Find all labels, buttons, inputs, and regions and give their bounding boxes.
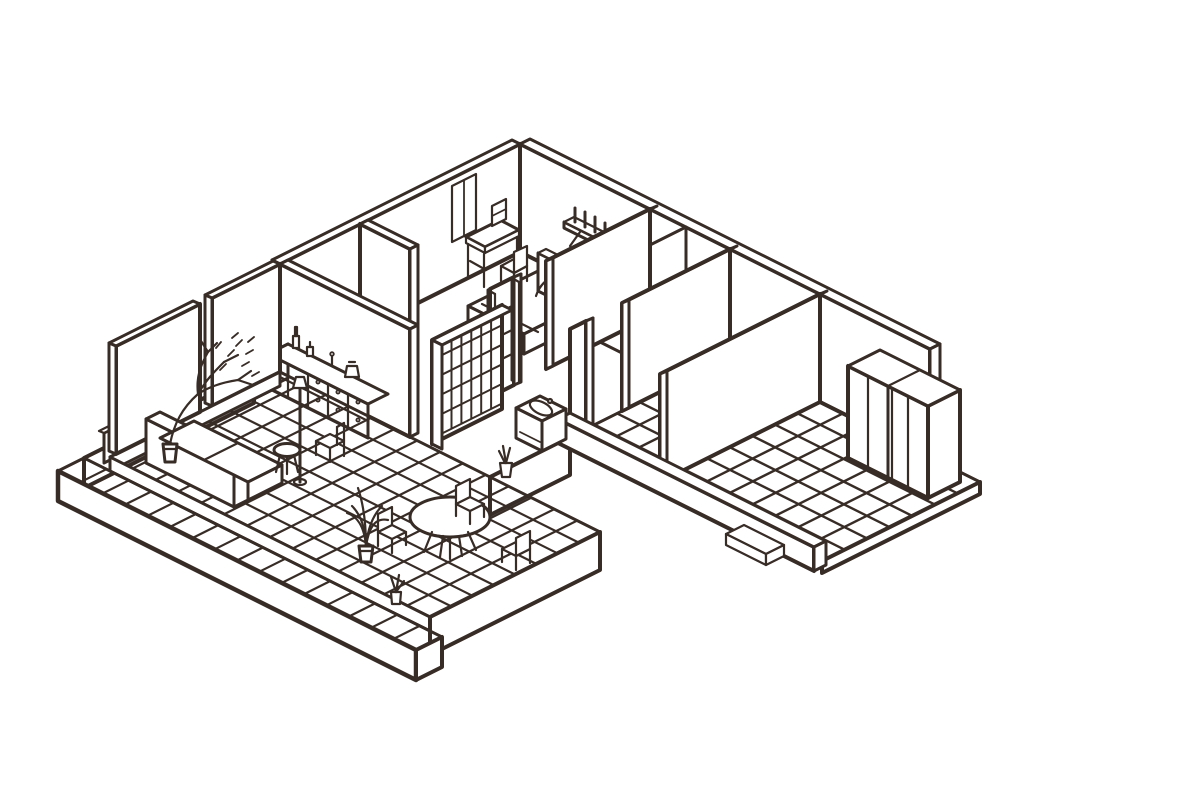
page xyxy=(0,0,1200,800)
vanity xyxy=(516,396,566,451)
bottle xyxy=(293,327,299,348)
isometric-floorplan-illustration xyxy=(0,0,1200,800)
faucet xyxy=(548,399,552,403)
window-slit xyxy=(452,174,476,242)
